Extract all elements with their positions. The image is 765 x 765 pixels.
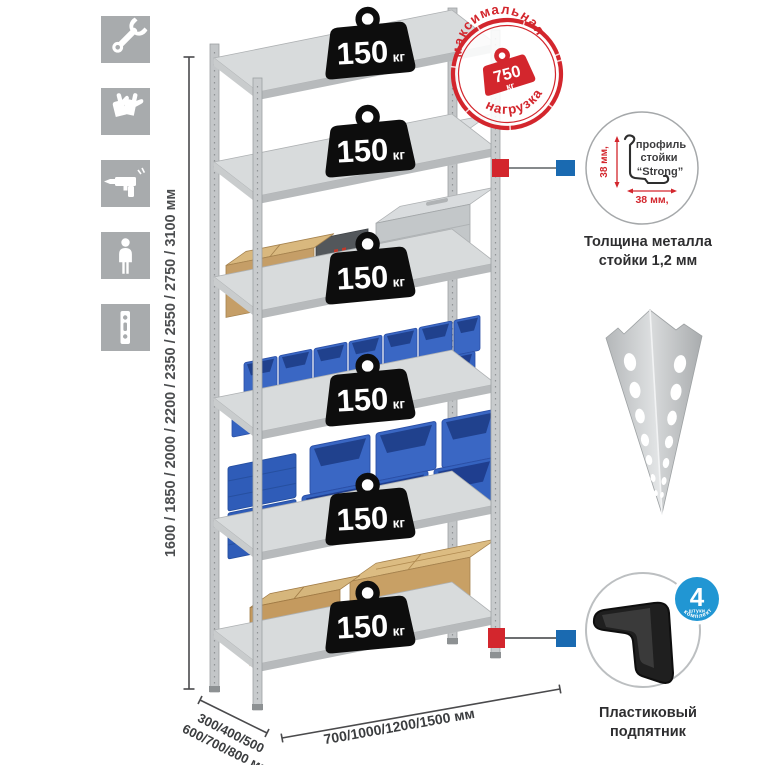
weight-unit: кг — [392, 49, 406, 65]
foot-caption-2: подпятник — [610, 724, 687, 740]
profile-dim-vertical: 38 мм, — [599, 146, 610, 178]
weight-2: 150 кг — [322, 106, 416, 178]
weight-value: 150 — [336, 132, 389, 170]
drill-icon — [101, 160, 150, 207]
profile-label-2: стойки — [640, 152, 677, 164]
height-dimension — [184, 57, 195, 689]
profile-dim-horizontal: 38 мм, — [635, 194, 668, 206]
weight-unit: кг — [392, 396, 406, 412]
weight-unit: кг — [392, 147, 406, 163]
weight-value: 150 — [336, 34, 389, 72]
top-callout — [492, 159, 575, 177]
bottom-callout — [488, 628, 576, 648]
weight-unit: кг — [392, 623, 406, 639]
weight-1: 150 кг — [322, 8, 416, 80]
height-dimension-label: 1600 / 1850 / 2000 / 2200 / 2350 / 2550 … — [163, 189, 179, 557]
product-infographic: 1600 / 1850 / 2000 / 2200 / 2350 / 2550 … — [0, 0, 765, 765]
wrench-icon — [101, 16, 150, 63]
illustration-svg: 1600 / 1850 / 2000 / 2200 / 2350 / 2550 … — [0, 0, 765, 765]
blue-marker — [556, 630, 576, 647]
red-marker — [492, 159, 509, 177]
gloves-icon — [101, 88, 150, 135]
weight-value: 150 — [336, 608, 389, 646]
weight-unit: кг — [392, 274, 406, 290]
upright-profile-icon — [101, 304, 150, 351]
badge-number: 4 — [690, 582, 705, 612]
weight-value: 150 — [336, 500, 389, 538]
kit-badge: 4 штуки в комплекте — [672, 574, 723, 625]
profile-caption-1: Толщина металла — [584, 234, 713, 250]
profile-caption-2: стойки 1,2 мм — [599, 253, 698, 269]
foot-caption-1: Пластиковый — [599, 705, 697, 721]
weight-unit: кг — [392, 515, 406, 531]
weight-value: 150 — [336, 381, 389, 419]
foot-detail: 4 штуки в комплекте — [586, 573, 723, 687]
sidebar-icons — [101, 16, 150, 351]
profile-label-3: “Strong” — [637, 166, 683, 178]
profile-detail: 38 мм, 38 мм, профиль стойки “Strong” — [586, 112, 698, 224]
red-marker — [488, 628, 505, 648]
metal-angle-upright — [606, 310, 702, 514]
person-icon — [101, 232, 150, 279]
blue-marker — [556, 160, 575, 176]
profile-label-1: профиль — [636, 139, 686, 151]
weight-value: 150 — [336, 259, 389, 297]
